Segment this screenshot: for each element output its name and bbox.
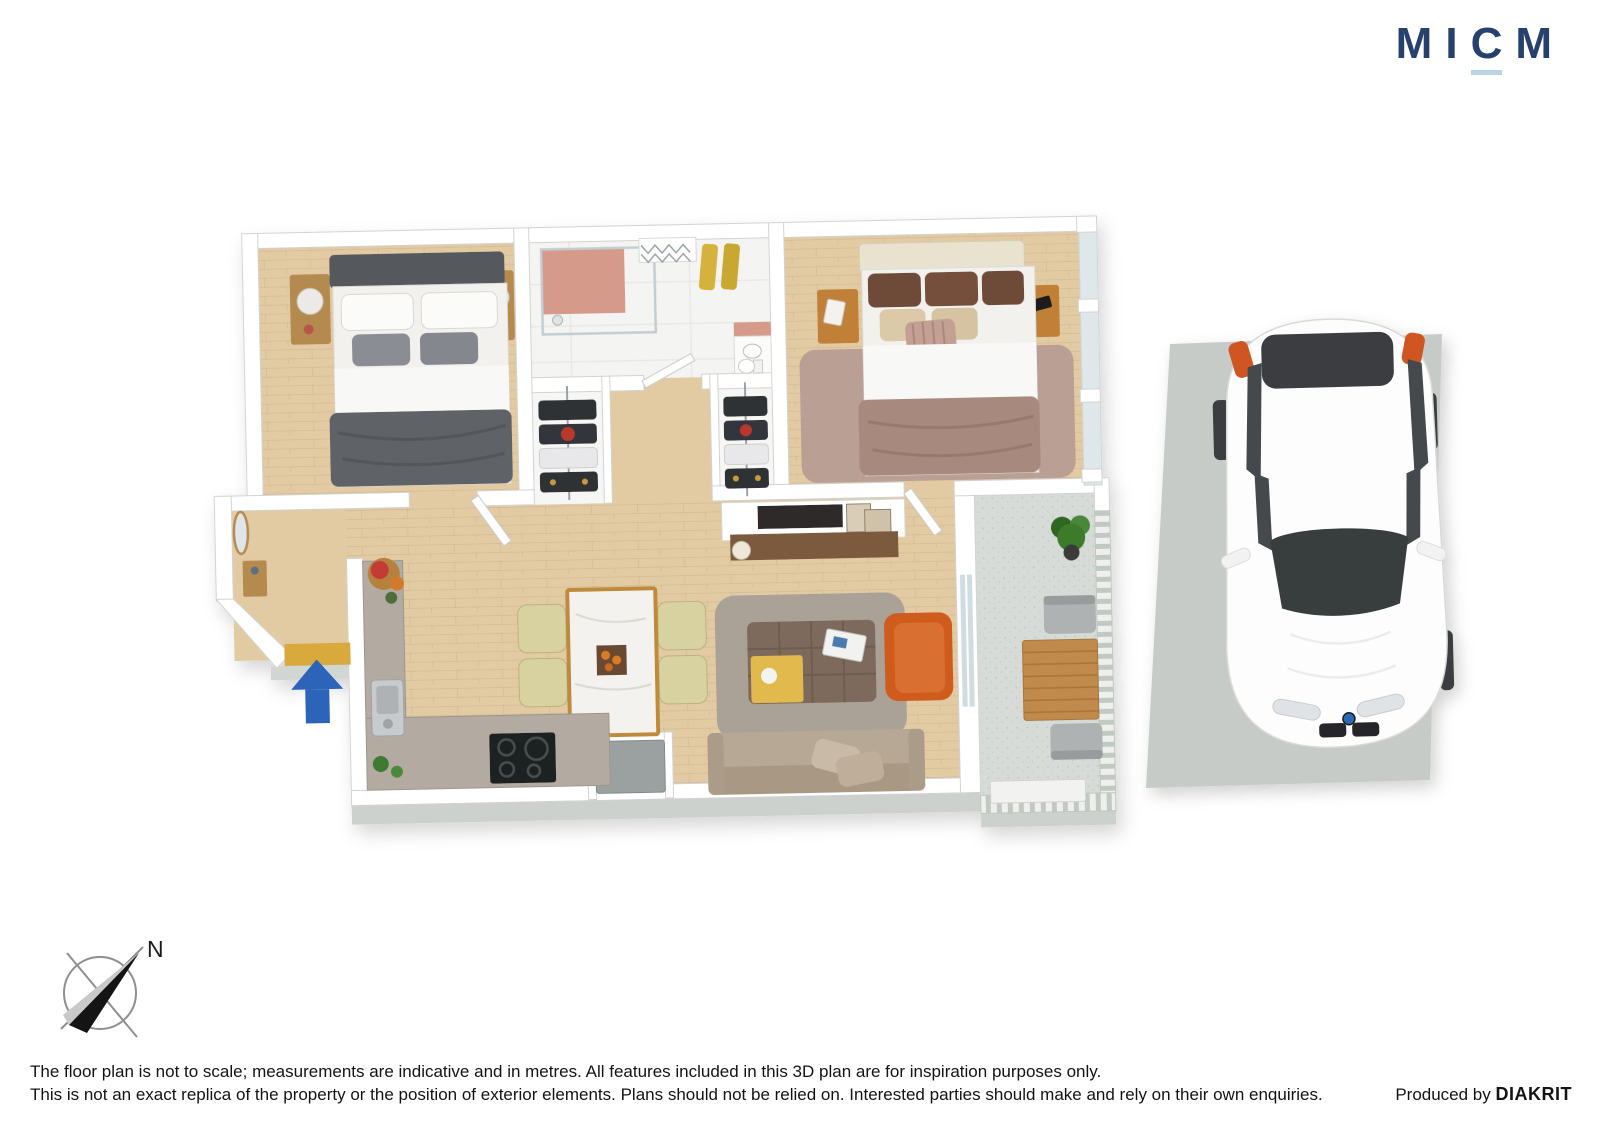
bath-mat	[639, 237, 696, 262]
accent-chair-orange	[884, 612, 954, 701]
tv-shelf	[730, 531, 899, 561]
shower-tiles	[541, 248, 625, 315]
disclaimer-line2: This is not an exact replica of the prop…	[30, 1083, 1330, 1106]
shower-head	[552, 315, 562, 325]
dining-chair	[659, 655, 708, 704]
grille	[1319, 723, 1346, 738]
toilet	[738, 359, 762, 373]
balcony-door	[959, 574, 976, 708]
tv	[757, 504, 842, 529]
console-table	[243, 560, 268, 596]
planter-box	[990, 779, 1085, 803]
wardrobe2	[723, 382, 769, 497]
mirror	[233, 512, 248, 554]
lamp	[297, 288, 324, 315]
hall-niche-floor	[610, 377, 713, 503]
grille	[1352, 722, 1379, 737]
logo-letter: M	[1515, 22, 1552, 66]
credit-prefix: Produced by	[1395, 1085, 1495, 1104]
side-window	[1404, 467, 1422, 545]
compass-rose: N	[55, 933, 185, 1045]
outdoor-table	[1022, 639, 1099, 721]
needle-dark	[69, 953, 139, 1033]
logo-letter: M	[1396, 22, 1433, 66]
stove	[489, 732, 556, 783]
bed-double-brown	[855, 240, 1041, 476]
dining-chair	[517, 604, 566, 653]
wall-row-b	[477, 490, 534, 506]
rear-window-sunroof	[1261, 332, 1394, 389]
floor-plan	[203, 203, 1126, 862]
wall-entry-west	[214, 496, 233, 601]
car-space	[1120, 300, 1480, 800]
needle-light	[63, 953, 139, 1025]
credit-producer: DIAKRIT	[1496, 1084, 1573, 1104]
dining-chair	[519, 658, 568, 707]
disclaimer-text: The floor plan is not to scale; measurem…	[30, 1060, 1330, 1106]
disclaimer-line1: The floor plan is not to scale; measurem…	[30, 1060, 1330, 1083]
centerpiece	[596, 645, 627, 676]
bed-double-gray	[326, 251, 513, 487]
vase	[732, 541, 750, 559]
tray	[751, 655, 804, 703]
wall-bath-south-a	[532, 375, 644, 392]
dining-chair	[657, 601, 706, 650]
north-label: N	[147, 936, 164, 962]
logo-letter: I	[1445, 22, 1457, 66]
logo-letter-underlined: C	[1471, 22, 1503, 75]
notebook	[823, 299, 845, 326]
sink	[371, 680, 404, 737]
ottoman-coffee-table	[747, 620, 877, 705]
page: M I C M	[0, 0, 1600, 1131]
micm-logo: M I C M	[1396, 22, 1552, 75]
bmw-roundel	[1343, 713, 1355, 725]
sofa	[707, 729, 925, 796]
producer-credit: Produced by DIAKRIT	[1395, 1084, 1572, 1105]
car-white-top-view	[1211, 316, 1456, 750]
tv-unit	[721, 499, 905, 561]
wall-row-bed2-south	[954, 478, 1102, 496]
wardrobe1	[538, 385, 598, 500]
windshield	[1270, 527, 1410, 618]
